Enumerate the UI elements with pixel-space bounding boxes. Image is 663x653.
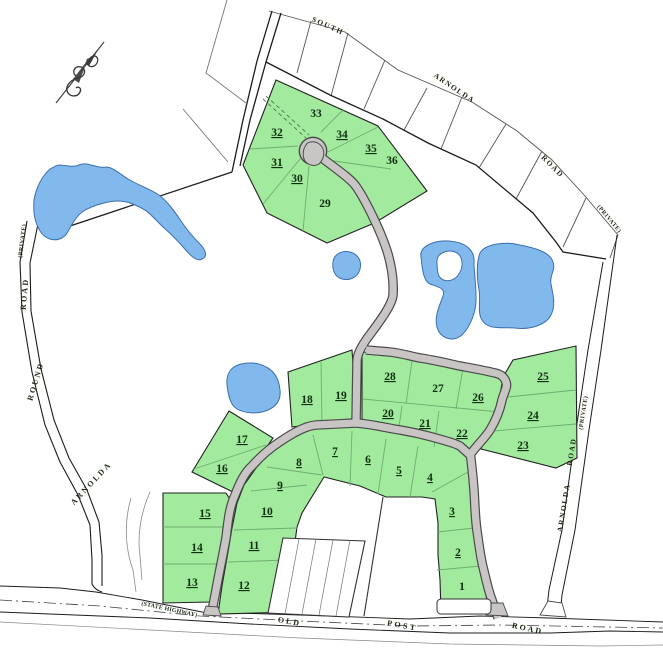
svg-text:8: 8 — [296, 457, 302, 469]
svg-text:34: 34 — [336, 129, 348, 141]
svg-text:19: 19 — [335, 390, 347, 402]
svg-text:20: 20 — [382, 408, 394, 420]
svg-text:35: 35 — [365, 143, 377, 155]
svg-text:15: 15 — [199, 508, 211, 520]
svg-text:29: 29 — [319, 198, 331, 210]
svg-text:22: 22 — [456, 428, 468, 440]
svg-text:2: 2 — [455, 547, 461, 559]
svg-text:10: 10 — [261, 506, 273, 518]
svg-text:16: 16 — [216, 463, 228, 475]
svg-text:30: 30 — [291, 173, 303, 185]
svg-text:14: 14 — [191, 542, 203, 554]
svg-text:33: 33 — [310, 108, 322, 120]
svg-text:27: 27 — [432, 383, 444, 395]
svg-text:31: 31 — [271, 157, 283, 169]
svg-text:4: 4 — [427, 472, 433, 484]
svg-text:5: 5 — [396, 465, 402, 477]
svg-text:3: 3 — [449, 506, 455, 518]
svg-text:24: 24 — [527, 410, 539, 422]
svg-text:11: 11 — [249, 540, 260, 552]
svg-text:21: 21 — [419, 418, 431, 430]
svg-text:17: 17 — [236, 434, 248, 446]
svg-text:36: 36 — [386, 155, 398, 167]
svg-text:23: 23 — [517, 440, 529, 452]
svg-text:12: 12 — [238, 580, 250, 592]
svg-text:7: 7 — [332, 446, 338, 458]
svg-text:26: 26 — [472, 392, 484, 404]
svg-text:6: 6 — [365, 454, 371, 466]
svg-text:9: 9 — [277, 480, 283, 492]
svg-text:18: 18 — [301, 394, 313, 406]
svg-text:1: 1 — [459, 581, 465, 593]
svg-text:25: 25 — [537, 371, 549, 383]
svg-text:28: 28 — [384, 371, 396, 383]
svg-text:13: 13 — [186, 577, 198, 589]
svg-text:32: 32 — [271, 127, 283, 139]
